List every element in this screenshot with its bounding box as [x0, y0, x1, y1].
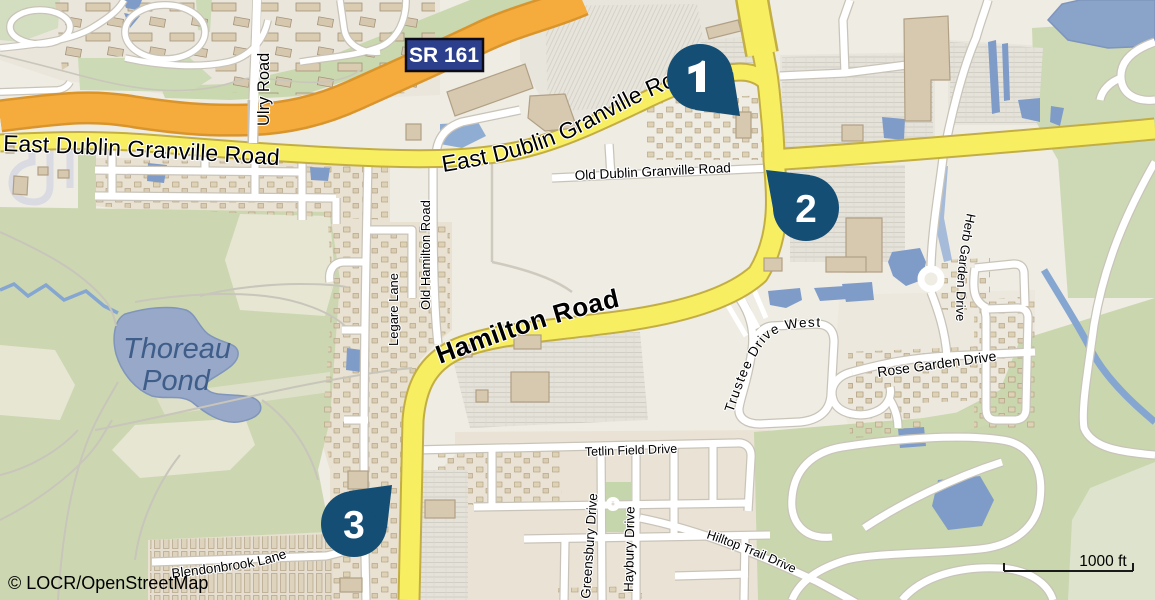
svg-text:Ulry Road: Ulry Road — [255, 53, 273, 126]
svg-text:2: 2 — [795, 188, 817, 231]
svg-text:3: 3 — [343, 504, 365, 547]
svg-text:© LOCR/OpenStreetMap: © LOCR/OpenStreetMap — [8, 573, 208, 593]
svg-text:Thoreau: Thoreau — [123, 333, 231, 365]
svg-text:Legare Lane: Legare Lane — [386, 273, 401, 346]
svg-text:1000 ft: 1000 ft — [1079, 553, 1127, 570]
svg-text:Old Hamilton Road: Old Hamilton Road — [418, 200, 433, 310]
svg-text:Pond: Pond — [142, 365, 211, 397]
svg-text:SR 161: SR 161 — [409, 44, 479, 67]
svg-text:Haybury Drive: Haybury Drive — [621, 506, 637, 592]
